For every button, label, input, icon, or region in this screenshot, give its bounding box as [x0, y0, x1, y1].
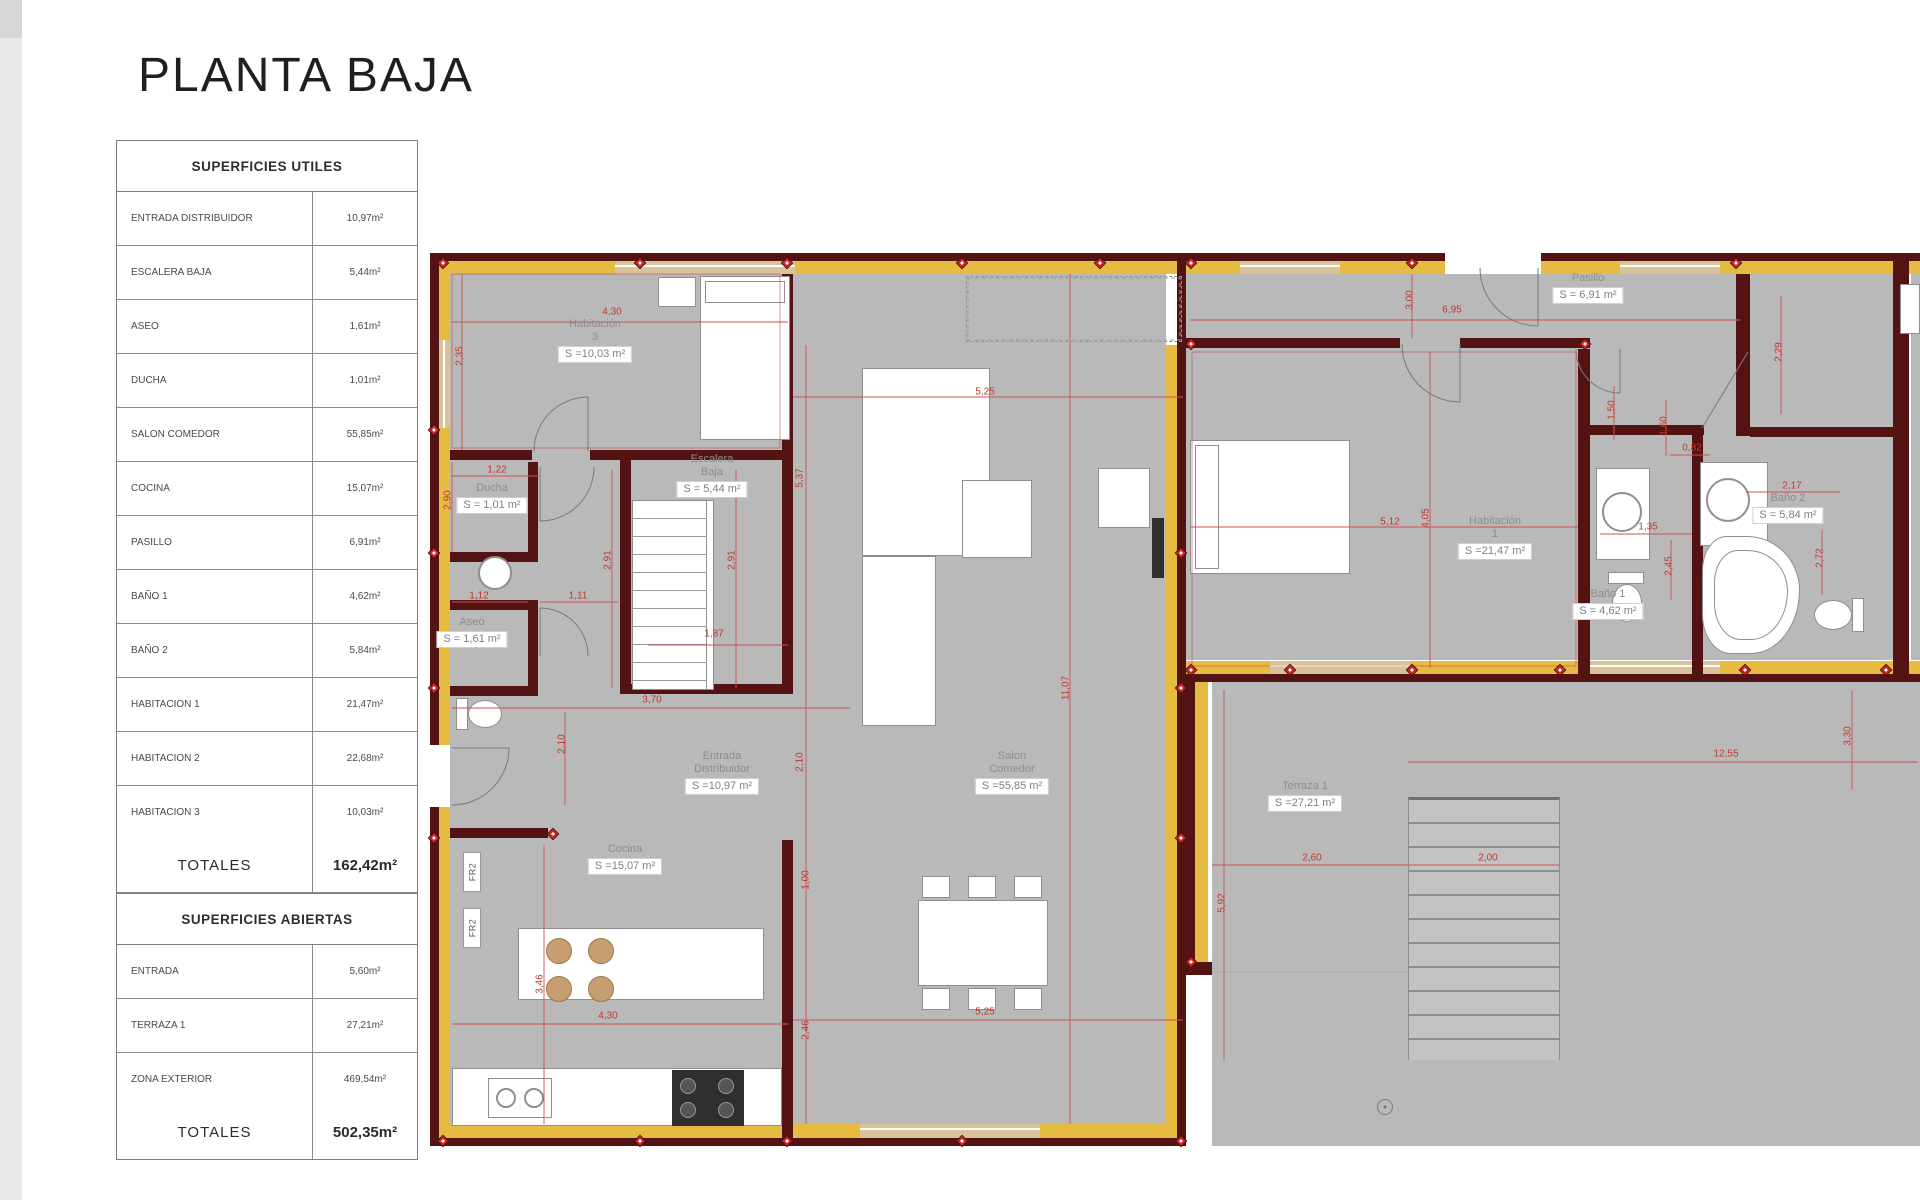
utility-marker	[1377, 1099, 1393, 1115]
room-area-value: S = 1,01 m²	[456, 497, 527, 514]
room-label-terraza-1: Terraza 1S =27,21 m²	[1268, 780, 1342, 812]
dimension-label: 2,91	[727, 550, 738, 569]
room-area-value: S = 6,91 m²	[1552, 287, 1623, 304]
dimension-label: 2,72	[1815, 548, 1826, 567]
room-area-value: S = 5,44 m²	[676, 481, 747, 498]
dimension-label: 4,30	[598, 1011, 617, 1022]
dimension-label: 1,12	[469, 591, 488, 602]
room-label-salon-comedor: SalonComedorS =55,85 m²	[975, 750, 1049, 795]
dimension-label: 2,29	[1774, 342, 1785, 361]
fr2-label: FR2	[463, 908, 481, 948]
dimension-label: 5,25	[975, 387, 994, 398]
page-canvas: PLANTA BAJA SUPERFICIES UTILES ENTRADA D…	[0, 0, 1920, 1200]
dimension-label: 3,46	[535, 974, 546, 993]
dimension-label: 1,35	[1638, 522, 1657, 533]
room-label-habitacion-1: Habitación1S =21,47 m²	[1458, 515, 1532, 560]
room-label-pasillo: PasilloS = 6,91 m²	[1552, 272, 1623, 304]
dimension-label: 2,10	[557, 734, 568, 753]
dimension-label: 3,70	[642, 695, 661, 706]
dimension-label: 2,91	[603, 550, 614, 569]
dimension-label: 2,60	[1302, 853, 1321, 864]
dimension-label: 2,17	[1782, 481, 1801, 492]
room-area-value: S =10,03 m²	[558, 346, 632, 363]
room-label-bano-2: Baño 2S = 5,84 m²	[1752, 492, 1823, 524]
dimension-label: 3,00	[1405, 290, 1416, 309]
room-label-aseo: AseoS = 1,61 m²	[436, 616, 507, 648]
room-area-value: S = 5,84 m²	[1752, 507, 1823, 524]
dimension-label: 1,87	[704, 629, 723, 640]
room-area-value: S =15,07 m²	[588, 858, 662, 875]
dimension-label: 2,00	[1478, 853, 1497, 864]
room-area-value: S = 4,62 m²	[1572, 603, 1643, 620]
room-area-value: S =27,21 m²	[1268, 795, 1342, 812]
dimension-label: 2,46	[801, 1020, 812, 1039]
room-label-bano-1: Baño 1S = 4,62 m²	[1572, 588, 1643, 620]
dimension-label: 2,45	[1664, 556, 1675, 575]
room-label-entrada-distribuidor: EntradaDistribuidorS =10,97 m²	[685, 750, 759, 795]
dimension-label: 1,22	[487, 465, 506, 476]
dimension-label: 4,05	[1421, 508, 1432, 527]
dimension-label: 1,11	[569, 591, 588, 602]
dimension-label: 2,10	[795, 752, 806, 771]
dimension-label: 3,30	[1843, 726, 1854, 745]
dimension-label: 5,12	[1380, 517, 1399, 528]
fr2-label: FR2	[463, 852, 481, 892]
dimension-label: 1,50	[1607, 400, 1618, 419]
floor-plan: Habitación3S =10,03 m²EscaleraBajaS = 5,…	[0, 0, 1920, 1200]
room-label-escalera-baja: EscaleraBajaS = 5,44 m²	[676, 453, 747, 498]
dimension-label: 4,30	[602, 307, 621, 318]
dimension-label: 11,07	[1061, 676, 1072, 700]
dimension-label: 5,92	[1217, 893, 1228, 912]
room-area-value: S = 1,61 m²	[436, 631, 507, 648]
dimension-label: 2,35	[455, 346, 466, 365]
room-area-value: S =55,85 m²	[975, 778, 1049, 795]
dimension-label: 12,55	[1713, 749, 1738, 760]
room-label-cocina: CocinaS =15,07 m²	[588, 843, 662, 875]
room-label-ducha: DuchaS = 1,01 m²	[456, 482, 527, 514]
room-area-value: S =21,47 m²	[1458, 543, 1532, 560]
dimension-label: 5,25	[975, 1007, 994, 1018]
dimension-label: 1,00	[801, 870, 812, 889]
room-area-value: S =10,97 m²	[685, 778, 759, 795]
dimension-label: 0,82	[1682, 443, 1701, 454]
dimension-label: 5,37	[795, 468, 806, 487]
dimension-label: 2,90	[443, 490, 454, 509]
dimension-label: 1,60	[1659, 416, 1670, 435]
dimension-label: 6,95	[1442, 305, 1461, 316]
room-label-habitacion-3: Habitación3S =10,03 m²	[558, 318, 632, 363]
